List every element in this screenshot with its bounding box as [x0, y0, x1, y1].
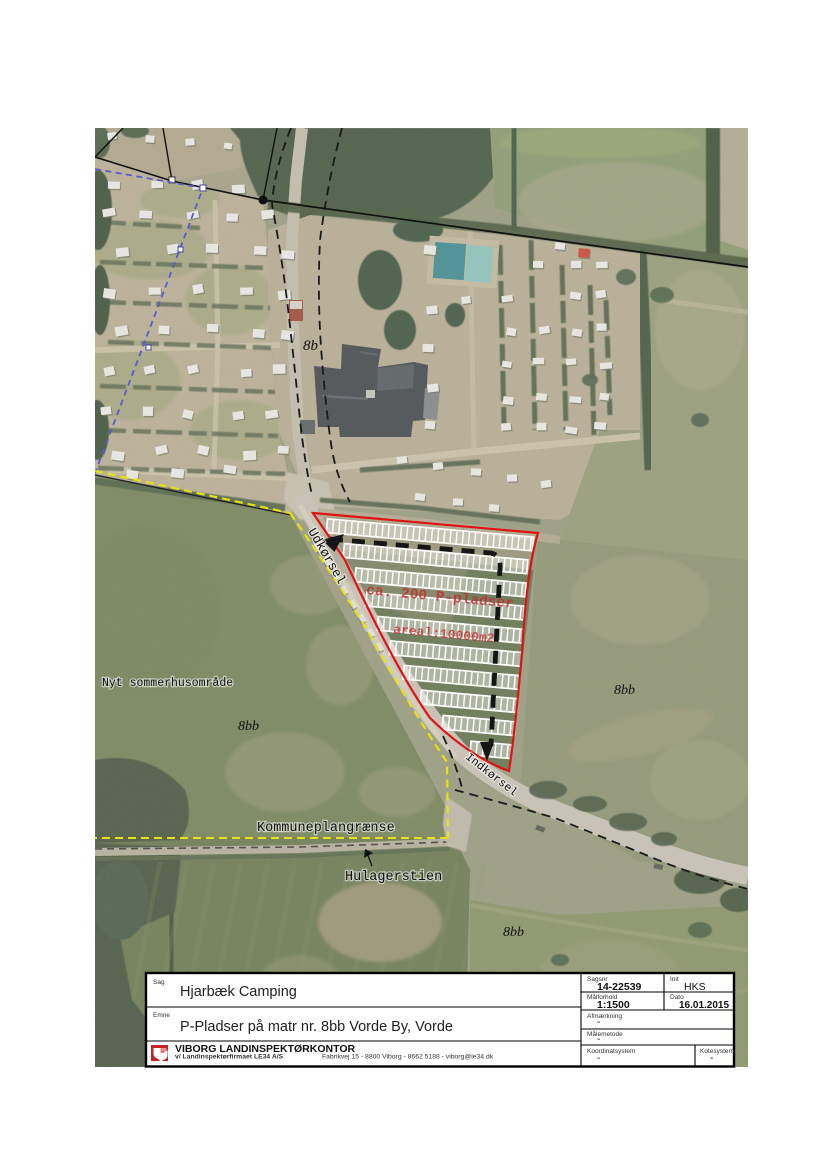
svg-text:Målemetode: Målemetode — [587, 1030, 623, 1038]
svg-text:v/ Landinspektørfirmaet LE34 A: v/ Landinspektørfirmaet LE34 A/S — [175, 1054, 284, 1061]
svg-text:16.01.2015: 16.01.2015 — [679, 1000, 729, 1011]
svg-text:Fabrikvej 15 - 8800 Viborg - 8: Fabrikvej 15 - 8800 Viborg - 8662 5188 -… — [322, 1054, 494, 1061]
svg-text:Emne: Emne — [153, 1012, 170, 1019]
svg-text:Hulagerstien: Hulagerstien — [345, 870, 442, 885]
svg-text:Hjarbæk Camping: Hjarbæk Camping — [180, 984, 297, 1000]
svg-text:14-22539: 14-22539 — [597, 981, 642, 993]
svg-text:-: - — [710, 1053, 713, 1064]
svg-text:-: - — [597, 1017, 600, 1028]
svg-text:Sag: Sag — [153, 979, 165, 986]
svg-text:-: - — [597, 1034, 600, 1045]
svg-text:8bb: 8bb — [614, 683, 635, 698]
svg-text:Kommuneplangrænse: Kommuneplangrænse — [257, 821, 395, 836]
svg-text:1:1500: 1:1500 — [597, 999, 630, 1011]
svg-text:Kotesystem: Kotesystem — [700, 1048, 734, 1055]
svg-text:8bb: 8bb — [503, 925, 524, 940]
svg-text:Init: Init — [670, 976, 679, 983]
svg-text:HKS: HKS — [684, 981, 706, 993]
svg-text:Afmærkning: Afmærkning — [587, 1013, 622, 1020]
svg-text:Koordinatsystem: Koordinatsystem — [587, 1048, 635, 1055]
svg-text:8bb: 8bb — [238, 719, 259, 734]
svg-text:-: - — [597, 1053, 600, 1064]
svg-text:Nyt sommerhusområde: Nyt sommerhusområde — [102, 677, 233, 690]
svg-text:8b: 8b — [303, 338, 319, 354]
svg-text:P-Pladser på matr nr. 8bb Vord: P-Pladser på matr nr. 8bb Vorde By, Vord… — [180, 1019, 453, 1035]
